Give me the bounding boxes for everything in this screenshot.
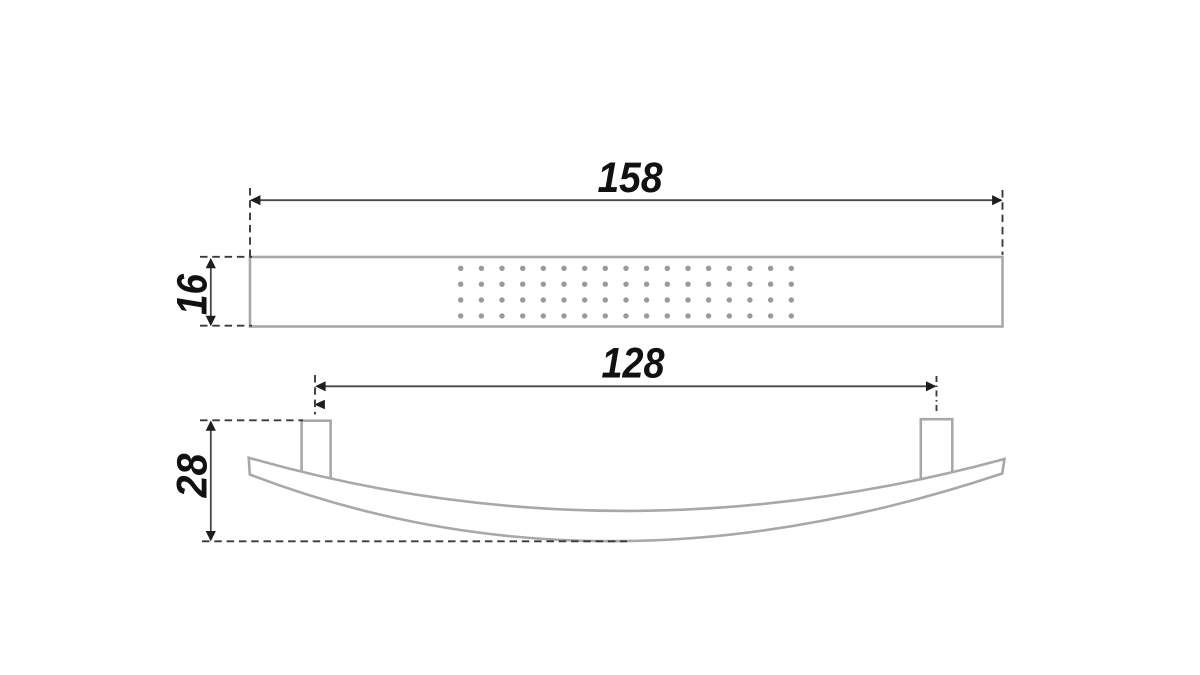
svg-text:28: 28 <box>169 453 217 498</box>
svg-text:158: 158 <box>598 154 663 202</box>
svg-text:16: 16 <box>169 273 217 315</box>
svg-text:128: 128 <box>602 340 665 388</box>
